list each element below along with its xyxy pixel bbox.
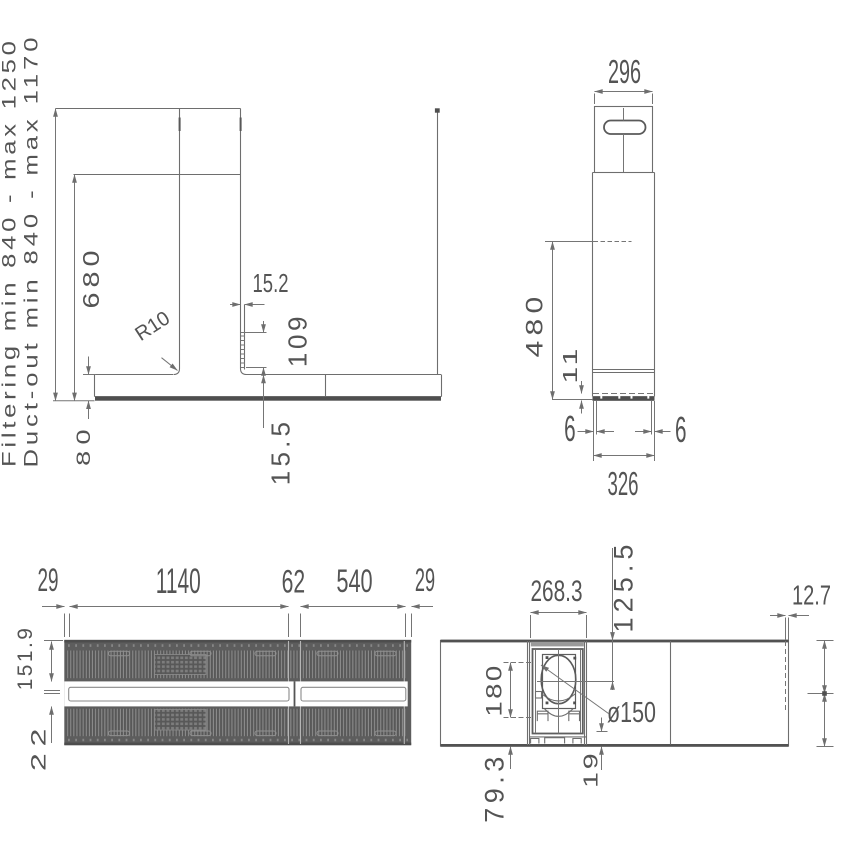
svg-text:1140: 1140 (156, 563, 201, 602)
svg-text:296: 296 (608, 53, 641, 91)
svg-text:540: 540 (336, 563, 372, 599)
svg-text:19: 19 (580, 751, 602, 788)
svg-text:6: 6 (564, 409, 575, 449)
svg-text:268.3: 268.3 (530, 575, 582, 608)
svg-text:29: 29 (38, 562, 59, 599)
svg-text:109: 109 (283, 313, 313, 367)
svg-text:125.5: 125.5 (609, 539, 639, 632)
svg-text:326: 326 (608, 465, 639, 502)
svg-text:22: 22 (26, 722, 50, 771)
svg-text:Duct-out min 840 - max 1170: Duct-out min 840 - max 1170 (21, 38, 42, 468)
svg-text:151.9: 151.9 (14, 626, 37, 691)
svg-text:15.5: 15.5 (266, 418, 296, 485)
svg-text:62: 62 (282, 563, 305, 600)
svg-text:680: 680 (78, 246, 105, 309)
svg-text:29: 29 (415, 561, 435, 598)
svg-text:79.3: 79.3 (480, 752, 510, 823)
svg-text:12.7: 12.7 (792, 580, 831, 611)
svg-text:180: 180 (482, 663, 507, 716)
svg-text:6: 6 (675, 410, 686, 450)
svg-text:480: 480 (520, 292, 547, 358)
svg-text:Filtering min 840 - max 1250: Filtering min 840 - max 1250 (0, 41, 20, 467)
svg-text:15.2: 15.2 (253, 269, 289, 298)
svg-text:11: 11 (560, 345, 582, 384)
svg-text:ø150: ø150 (607, 697, 656, 729)
svg-text:80: 80 (73, 423, 94, 466)
